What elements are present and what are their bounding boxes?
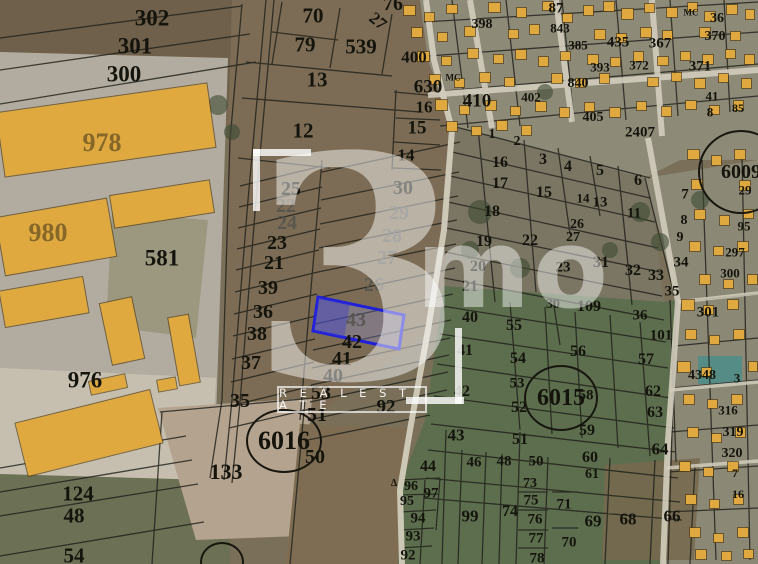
watermark-frame-corner [406, 397, 464, 404]
watermark-frame-corner [455, 328, 462, 404]
map-viewport[interactable]: 3023013009789805819761244854133707953913… [0, 0, 758, 564]
watermark-frame-corner [253, 149, 311, 156]
watermark-3-glyph: 3 [250, 116, 464, 424]
watermark-tagline: R E A L E S T A T E [277, 386, 427, 413]
watermark-brand: mo [416, 214, 610, 324]
watermark: 3 mo R E A L E S T A T E [0, 0, 758, 564]
watermark-frame-corner [253, 149, 260, 211]
